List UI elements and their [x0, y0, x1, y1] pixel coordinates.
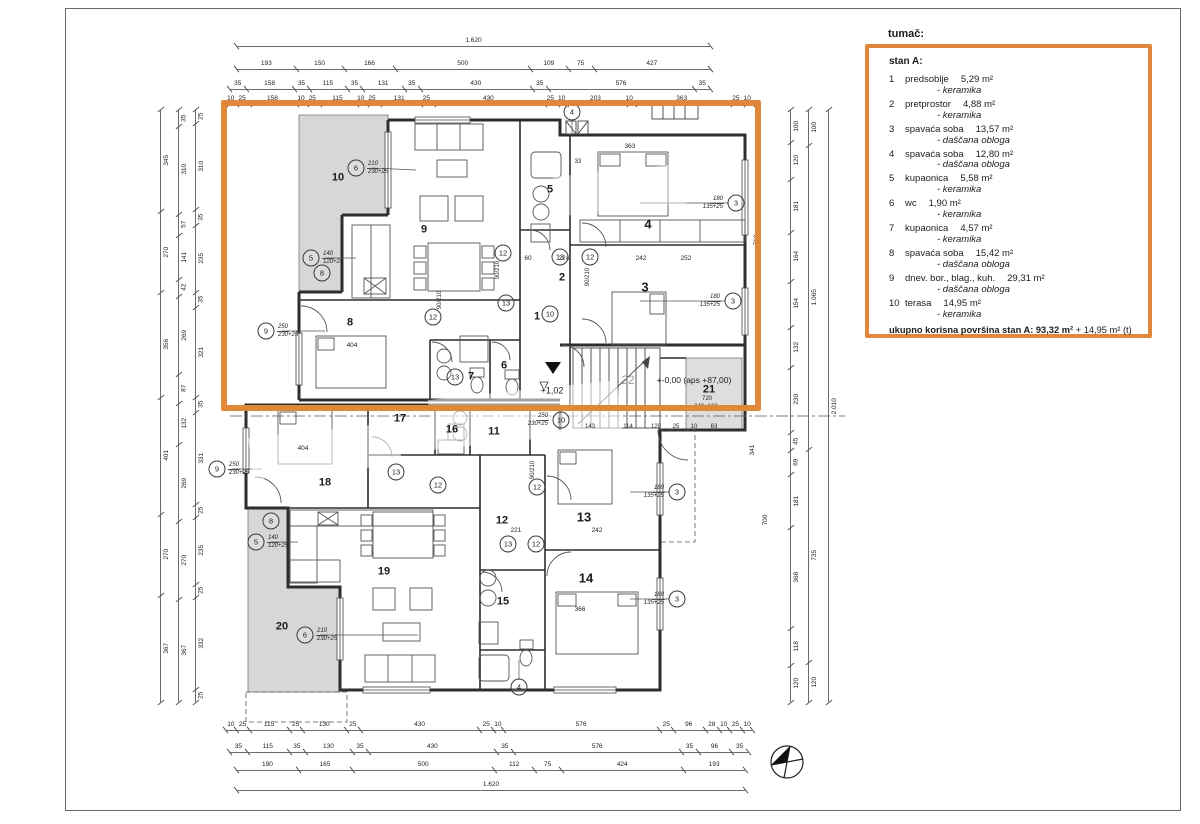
dim-segment: 25: [479, 718, 493, 730]
tag-dimensions: 250230+25: [228, 462, 250, 477]
dim-segment: 10: [742, 718, 752, 730]
dim-value: 166: [364, 61, 375, 70]
dim-value: 69: [794, 459, 801, 466]
dim-segment: 132: [791, 327, 803, 367]
legend-item-number: 6: [889, 199, 901, 210]
legend-item-material: - daščana obloga: [937, 136, 1148, 147]
dim-value: 96: [685, 722, 692, 731]
legend-item: 3spavaća soba13,57 m²- daščana obloga: [889, 125, 1148, 147]
dim-value: 75: [544, 762, 551, 771]
legend-item-row: 4spavaća soba12,80 m²: [889, 150, 1148, 161]
dim-segment: 154: [791, 281, 803, 327]
dim-value: 193: [261, 61, 272, 70]
dim-segment: 35: [496, 740, 513, 752]
dim-value: 424: [617, 762, 628, 771]
dim-value: 35: [356, 744, 363, 753]
dim-value: 500: [457, 61, 468, 70]
plan-text: 120: [651, 424, 661, 430]
dim-segment: 269: [179, 296, 191, 373]
dim-segment: 35: [681, 740, 698, 752]
dim-segment: 269: [179, 444, 191, 521]
dim-segment: 181: [791, 179, 803, 232]
dim-segment: 115: [247, 740, 289, 752]
dim-segment: 165: [298, 757, 352, 770]
plan-text: 341: [750, 445, 757, 456]
reference-tag: 3: [669, 484, 686, 501]
dim-value: 367: [182, 645, 189, 656]
dim-segment: 35: [404, 76, 420, 89]
dim-segment: 270: [161, 211, 173, 292]
dim-value: 35: [408, 81, 415, 90]
legend-item-number: 3: [889, 125, 901, 136]
dim-segment: 25: [659, 718, 673, 730]
plan-text: 12: [496, 516, 508, 527]
dim-value: 25: [483, 722, 490, 731]
dim-segment: 115: [309, 76, 347, 89]
legend-items: 1predsoblje5,29 m²- keramika2pretprostor…: [889, 75, 1148, 320]
dim-segment: 332: [196, 597, 208, 689]
dim-value: 25: [239, 722, 246, 731]
dim-segment: 1.620: [237, 777, 745, 790]
dim-value: 35: [298, 81, 305, 90]
dim-value: 1.620: [483, 782, 499, 791]
legend-item: 8spavaća soba15,42 m²- daščana obloga: [889, 249, 1148, 271]
reference-tag: 6: [297, 627, 314, 644]
legend-item-row: 3spavaća soba13,57 m²: [889, 125, 1148, 136]
dim-segment: 35: [179, 110, 191, 126]
dim-value: 2.010: [832, 398, 839, 414]
tag-dimension: 140: [267, 535, 279, 543]
dim-segment: 230: [791, 367, 803, 432]
tag-dimension: 180: [653, 485, 665, 493]
plan-text: 16: [446, 425, 458, 436]
legend-item-name: spavaća soba: [905, 125, 964, 136]
plan-text: 18: [319, 478, 331, 489]
dim-value: 270: [164, 549, 171, 560]
tag-dimension: 230+25: [316, 636, 338, 643]
dim-value: 331: [199, 453, 206, 464]
legend-total-rest: + 14,95 m² (t): [1073, 325, 1132, 335]
reference-tag: 5: [248, 534, 265, 551]
dim-segment: 424: [561, 757, 683, 770]
dim-segment: 2.010: [829, 110, 841, 702]
dim-segment: 132: [179, 403, 191, 444]
legend-item: 6wc1,90 m²- keramika: [889, 199, 1148, 221]
dim-value: 35: [235, 744, 242, 753]
dim-segment: 10: [719, 718, 729, 730]
reference-tag: 10: [553, 412, 570, 429]
dim-value: 87: [182, 385, 189, 392]
dim-segment: 120: [809, 662, 821, 702]
dim-strip-left-3: 25310352353532135331252352533225: [195, 110, 208, 702]
dim-value: 1.065: [812, 289, 819, 305]
legend-item: 2pretprostor4,88 m²- keramika: [889, 100, 1148, 122]
plan-text: 10: [691, 424, 698, 430]
tag-dimensions: 210230+25: [316, 628, 338, 643]
dim-value: 150: [314, 61, 325, 70]
tag-dimension: 135+25: [643, 600, 665, 607]
dim-value: 165: [319, 762, 330, 771]
dim-value: 35: [199, 401, 206, 408]
legend-total-bold: ukupno korisna površina stan A: 93,32 m²: [889, 325, 1073, 335]
dim-value: 345: [164, 155, 171, 166]
legend-item-row: 8spavaća soba15,42 m²: [889, 249, 1148, 260]
dim-value: 35: [536, 81, 543, 90]
legend-item-number: 8: [889, 249, 901, 260]
dim-value: 576: [592, 744, 603, 753]
reference-tag: 8: [263, 513, 280, 530]
legend-item-number: 1: [889, 75, 901, 86]
dim-value: 25: [732, 722, 739, 731]
dim-value: 35: [699, 81, 706, 90]
dim-strip-right-1: 1001201811641541322304569181368118120: [790, 110, 803, 702]
dim-segment: 112: [494, 757, 534, 770]
dim-segment: 356: [161, 292, 173, 397]
dim-value: 141: [182, 252, 189, 263]
dim-segment: 576: [503, 718, 660, 730]
dim-segment: 35: [289, 740, 306, 752]
dim-value: 368: [794, 572, 801, 583]
legend-item-area: 13,57 m²: [976, 125, 1014, 136]
dim-value: 332: [199, 638, 206, 649]
dim-value: 57: [182, 221, 189, 228]
dim-segment: 310: [179, 126, 191, 214]
dim-value: 310: [199, 161, 206, 172]
dim-segment: 109: [530, 56, 568, 69]
legend-item-number: 7: [889, 224, 901, 235]
dim-value: 367: [164, 643, 171, 654]
legend-item-name: terasa: [905, 299, 931, 310]
dim-value: 112: [509, 762, 519, 771]
reference-tag: 12: [529, 479, 546, 496]
dim-value: 10: [743, 722, 750, 731]
dim-strip-top-2: 19315016650010975427: [237, 56, 710, 70]
tag-dimensions: 140120+25: [267, 535, 289, 550]
legend-item-number: 2: [889, 100, 901, 111]
tag-dimension: 210: [316, 628, 328, 636]
dim-value: 35: [293, 744, 300, 753]
legend-item-material: - daščana obloga: [937, 260, 1148, 271]
dim-value: 130: [319, 722, 330, 731]
dim-segment: 430: [420, 76, 532, 89]
dim-value: 270: [182, 555, 189, 566]
dim-segment: 235: [196, 517, 208, 584]
dim-segment: 75: [568, 56, 594, 69]
legend-title: tumač:: [888, 28, 924, 40]
dim-segment: 35: [352, 740, 369, 752]
plan-text: 25: [673, 424, 680, 430]
dim-segment: 181: [791, 474, 803, 527]
reference-tag: 12: [430, 477, 447, 494]
dim-segment: 235: [196, 225, 208, 292]
dim-value: 45: [794, 438, 801, 445]
dim-segment: 270: [179, 521, 191, 599]
dim-segment: 69: [791, 450, 803, 474]
tag-dimensions: 180135+25: [643, 592, 665, 607]
dim-segment: 115: [249, 718, 288, 730]
legend-item-row: 6wc1,90 m²: [889, 199, 1148, 210]
legend-item: 10terasa14,95 m²- keramika: [889, 299, 1148, 321]
plan-text: 13: [577, 511, 591, 524]
dim-segment: 10: [493, 718, 503, 730]
dim-value: 10: [494, 722, 501, 731]
dim-value: 430: [470, 81, 481, 90]
dim-segment: 35: [230, 740, 247, 752]
dim-segment: 96: [673, 718, 705, 730]
drawing-sheet: 1.620 19315016650010975427 3515835115351…: [0, 0, 1200, 824]
dim-value: 190: [262, 762, 273, 771]
dim-value: 270: [164, 246, 171, 257]
dim-segment: 367: [179, 599, 191, 702]
dim-value: 164: [794, 251, 801, 262]
dim-value: 96: [711, 744, 718, 753]
dim-value: 356: [164, 339, 171, 350]
legend-item: 1predsoblje5,29 m²- keramika: [889, 75, 1148, 97]
tag-dimension: 230+25: [228, 470, 250, 477]
plan-text: 114: [623, 424, 633, 430]
dim-value: 35: [501, 744, 508, 753]
plan-text: 17: [394, 414, 406, 425]
plan-text: 143: [585, 424, 595, 430]
dim-segment: 100: [791, 110, 803, 142]
legend-item-material: - daščana obloga: [937, 285, 1148, 296]
dim-value: 154: [794, 298, 801, 309]
dim-segment: 368: [791, 527, 803, 628]
reference-tag: 3: [669, 591, 686, 608]
dim-value: 430: [414, 722, 425, 731]
tag-dimension: 230+25: [527, 421, 549, 428]
dim-segment: 35: [196, 397, 208, 413]
dim-segment: 150: [296, 56, 344, 69]
dim-segment: 35: [731, 740, 748, 752]
dim-value: 25: [199, 507, 206, 514]
dim-value: 10: [720, 722, 727, 731]
dim-segment: 35: [347, 76, 363, 89]
dim-segment: 321: [196, 307, 208, 396]
dim-value: 430: [427, 744, 438, 753]
plan-text: 14: [579, 572, 593, 585]
dim-value: 118: [794, 641, 801, 651]
dim-value: 235: [199, 253, 206, 264]
dim-segment: 130: [302, 718, 346, 730]
dim-segment: 35: [230, 76, 246, 89]
dim-segment: 367: [161, 595, 173, 703]
dim-value: 115: [264, 722, 274, 731]
legend-item-material: - daščana obloga: [937, 160, 1148, 171]
tag-dimensions: 250230+25: [527, 413, 549, 428]
dim-value: 25: [663, 722, 670, 731]
dim-value: 181: [794, 200, 801, 211]
legend-item-area: 14,95 m²: [943, 299, 981, 310]
dim-value: 181: [794, 495, 801, 506]
dim-segment: 25: [196, 689, 208, 702]
reference-tag: 9: [209, 461, 226, 478]
legend-item-row: 10terasa14,95 m²: [889, 299, 1148, 310]
dim-value: 25: [199, 113, 206, 120]
tag-dimension: 120+25: [267, 543, 289, 550]
dim-segment: 190: [237, 757, 298, 770]
dim-segment: 25: [196, 504, 208, 517]
legend-item-row: 1predsoblje5,29 m²: [889, 75, 1148, 86]
plan-text: 404: [298, 446, 309, 453]
dim-segment: 331: [196, 412, 208, 504]
dim-segment: 576: [513, 740, 681, 752]
dim-segment: 120: [791, 142, 803, 179]
legend-item-material: - keramika: [937, 86, 1148, 97]
dim-segment: 42: [179, 279, 191, 297]
dim-value: 35: [351, 81, 358, 90]
dim-segment: 430: [368, 740, 496, 752]
reference-tag: 13: [388, 464, 405, 481]
dim-segment: 270: [161, 514, 173, 595]
dim-segment: 35: [196, 292, 208, 308]
dim-segment: 735: [809, 449, 821, 661]
dim-segment: 1.620: [237, 34, 710, 46]
legend-total: ukupno korisna površina stan A: 93,32 m²…: [889, 325, 1148, 335]
dim-value: 25: [199, 587, 206, 594]
dim-value: 25: [199, 692, 206, 699]
dim-value: 35: [199, 213, 206, 220]
dim-value: 25: [349, 722, 356, 731]
legend-item-material: - keramika: [937, 111, 1148, 122]
dim-value: 132: [182, 418, 189, 429]
dim-segment: 345: [161, 110, 173, 211]
dim-segment: 500: [352, 757, 494, 770]
dim-segment: 35: [196, 209, 208, 225]
dim-value: 120: [812, 677, 819, 688]
dim-value: 115: [262, 744, 272, 753]
plan-text: 11: [488, 427, 500, 438]
apartment-a-highlight: [221, 100, 761, 411]
dim-value: 120: [794, 678, 801, 689]
dim-value: 132: [794, 341, 801, 352]
dim-value: 28: [708, 722, 715, 731]
dim-segment: 25: [346, 718, 360, 730]
dim-value: 100: [794, 121, 801, 132]
north-arrow-icon: [771, 746, 803, 778]
dim-value: 158: [264, 81, 275, 90]
plan-text: 221: [511, 528, 522, 535]
dim-strip-top-3: 351583511535131354303557635: [230, 76, 710, 90]
dim-value: 576: [576, 722, 587, 731]
dim-segment: 100: [809, 110, 821, 145]
dim-segment: 131: [362, 76, 404, 89]
tag-dimension: 135+25: [643, 493, 665, 500]
dim-segment: 10: [226, 718, 236, 730]
dim-segment: 57: [179, 214, 191, 235]
dim-value: 310: [182, 164, 189, 175]
dim-value: 35: [199, 296, 206, 303]
dim-strip-right-total: 2.010: [828, 110, 841, 702]
dim-segment: 45: [791, 432, 803, 450]
legend-item: 4spavaća soba12,80 m²- daščana obloga: [889, 150, 1148, 172]
dim-value: 427: [646, 61, 657, 70]
dim-value: 269: [182, 330, 189, 341]
legend-item-material: - keramika: [937, 235, 1148, 246]
legend-item-row: 7kupaonica4,57 m²: [889, 224, 1148, 235]
dim-value: 576: [616, 81, 627, 90]
dim-value: 269: [182, 477, 189, 488]
legend-item-material: - keramika: [937, 310, 1148, 321]
dim-segment: 141: [179, 235, 191, 279]
dim-value: 193: [709, 762, 720, 771]
legend-box: stan A: 1predsoblje5,29 m²- keramika2pre…: [865, 44, 1152, 338]
dim-segment: 158: [246, 76, 294, 89]
tag-dimension: 250: [228, 462, 240, 470]
dim-value: 75: [577, 61, 584, 70]
legend-item-area: 29,31 m²: [1007, 274, 1045, 285]
dim-strip-top-total: 1.620: [237, 34, 710, 47]
dim-value: 235: [199, 545, 206, 556]
dim-value: 120: [794, 155, 801, 166]
dim-value: 321: [199, 347, 206, 358]
dim-strip-bottom-2: 35115351303543035576359635: [230, 740, 748, 753]
dim-segment: 164: [791, 232, 803, 281]
legend-item-row: 2pretprostor4,88 m²: [889, 100, 1148, 111]
reference-tag: 13: [500, 536, 517, 553]
dim-segment: 25: [729, 718, 743, 730]
dim-segment: 193: [237, 56, 296, 69]
plan-text: 15: [497, 597, 509, 608]
dim-strip-left-2: 35310571414226987132269270367: [178, 110, 191, 702]
dim-segment: 28: [705, 718, 719, 730]
dim-value: 100: [812, 122, 819, 133]
dim-segment: 25: [289, 718, 303, 730]
dim-segment: 75: [534, 757, 561, 770]
dim-value: 35: [234, 81, 241, 90]
legend-item-name: wc: [905, 199, 917, 210]
dim-segment: 118: [791, 628, 803, 665]
dim-value: 230: [794, 394, 801, 405]
legend-item-row: 5kupaonica5,58 m²: [889, 174, 1148, 185]
dim-value: 109: [543, 61, 554, 70]
reference-tag: 12: [528, 536, 545, 553]
plan-text: 19: [378, 567, 390, 578]
dim-segment: 430: [360, 718, 480, 730]
dim-segment: 35: [694, 76, 710, 89]
tag-dimension: 250: [537, 413, 549, 421]
dim-segment: 25: [196, 110, 208, 123]
dim-value: 35: [736, 744, 743, 753]
tag-dimension: 180: [653, 592, 665, 600]
dim-strip-left-1: 345270356401270367: [160, 110, 173, 702]
legend-item-number: 5: [889, 174, 901, 185]
legend-apartment-label: stan A:: [889, 56, 1148, 67]
dim-segment: 25: [236, 718, 250, 730]
dim-strip-right-2: 1001.065735120: [808, 110, 821, 702]
dim-segment: 1.065: [809, 145, 821, 450]
dim-value: 115: [323, 81, 333, 90]
legend-item-row: 9dnev. bor., blag., kuh.29,31 m²: [889, 274, 1148, 285]
dim-value: 500: [418, 762, 429, 771]
legend-item-material: - keramika: [937, 185, 1148, 196]
legend-item-number: 10: [889, 299, 901, 310]
reference-tag: 4: [511, 679, 528, 696]
plan-text: 700: [763, 515, 770, 526]
legend-item-number: 4: [889, 150, 901, 161]
plan-text: 242: [592, 528, 603, 535]
dim-segment: 35: [294, 76, 310, 89]
dim-segment: 193: [683, 757, 745, 770]
plan-text: 366: [575, 607, 586, 614]
dim-segment: 130: [305, 740, 351, 752]
legend-item: 9dnev. bor., blag., kuh.29,31 m²- daščan…: [889, 274, 1148, 296]
dim-segment: 25: [196, 584, 208, 597]
legend-item-material: - keramika: [937, 210, 1148, 221]
dim-value: 42: [182, 284, 189, 291]
dim-value: 401: [164, 450, 171, 461]
dim-strip-bottom-3: 19016550011275424193: [237, 757, 745, 771]
